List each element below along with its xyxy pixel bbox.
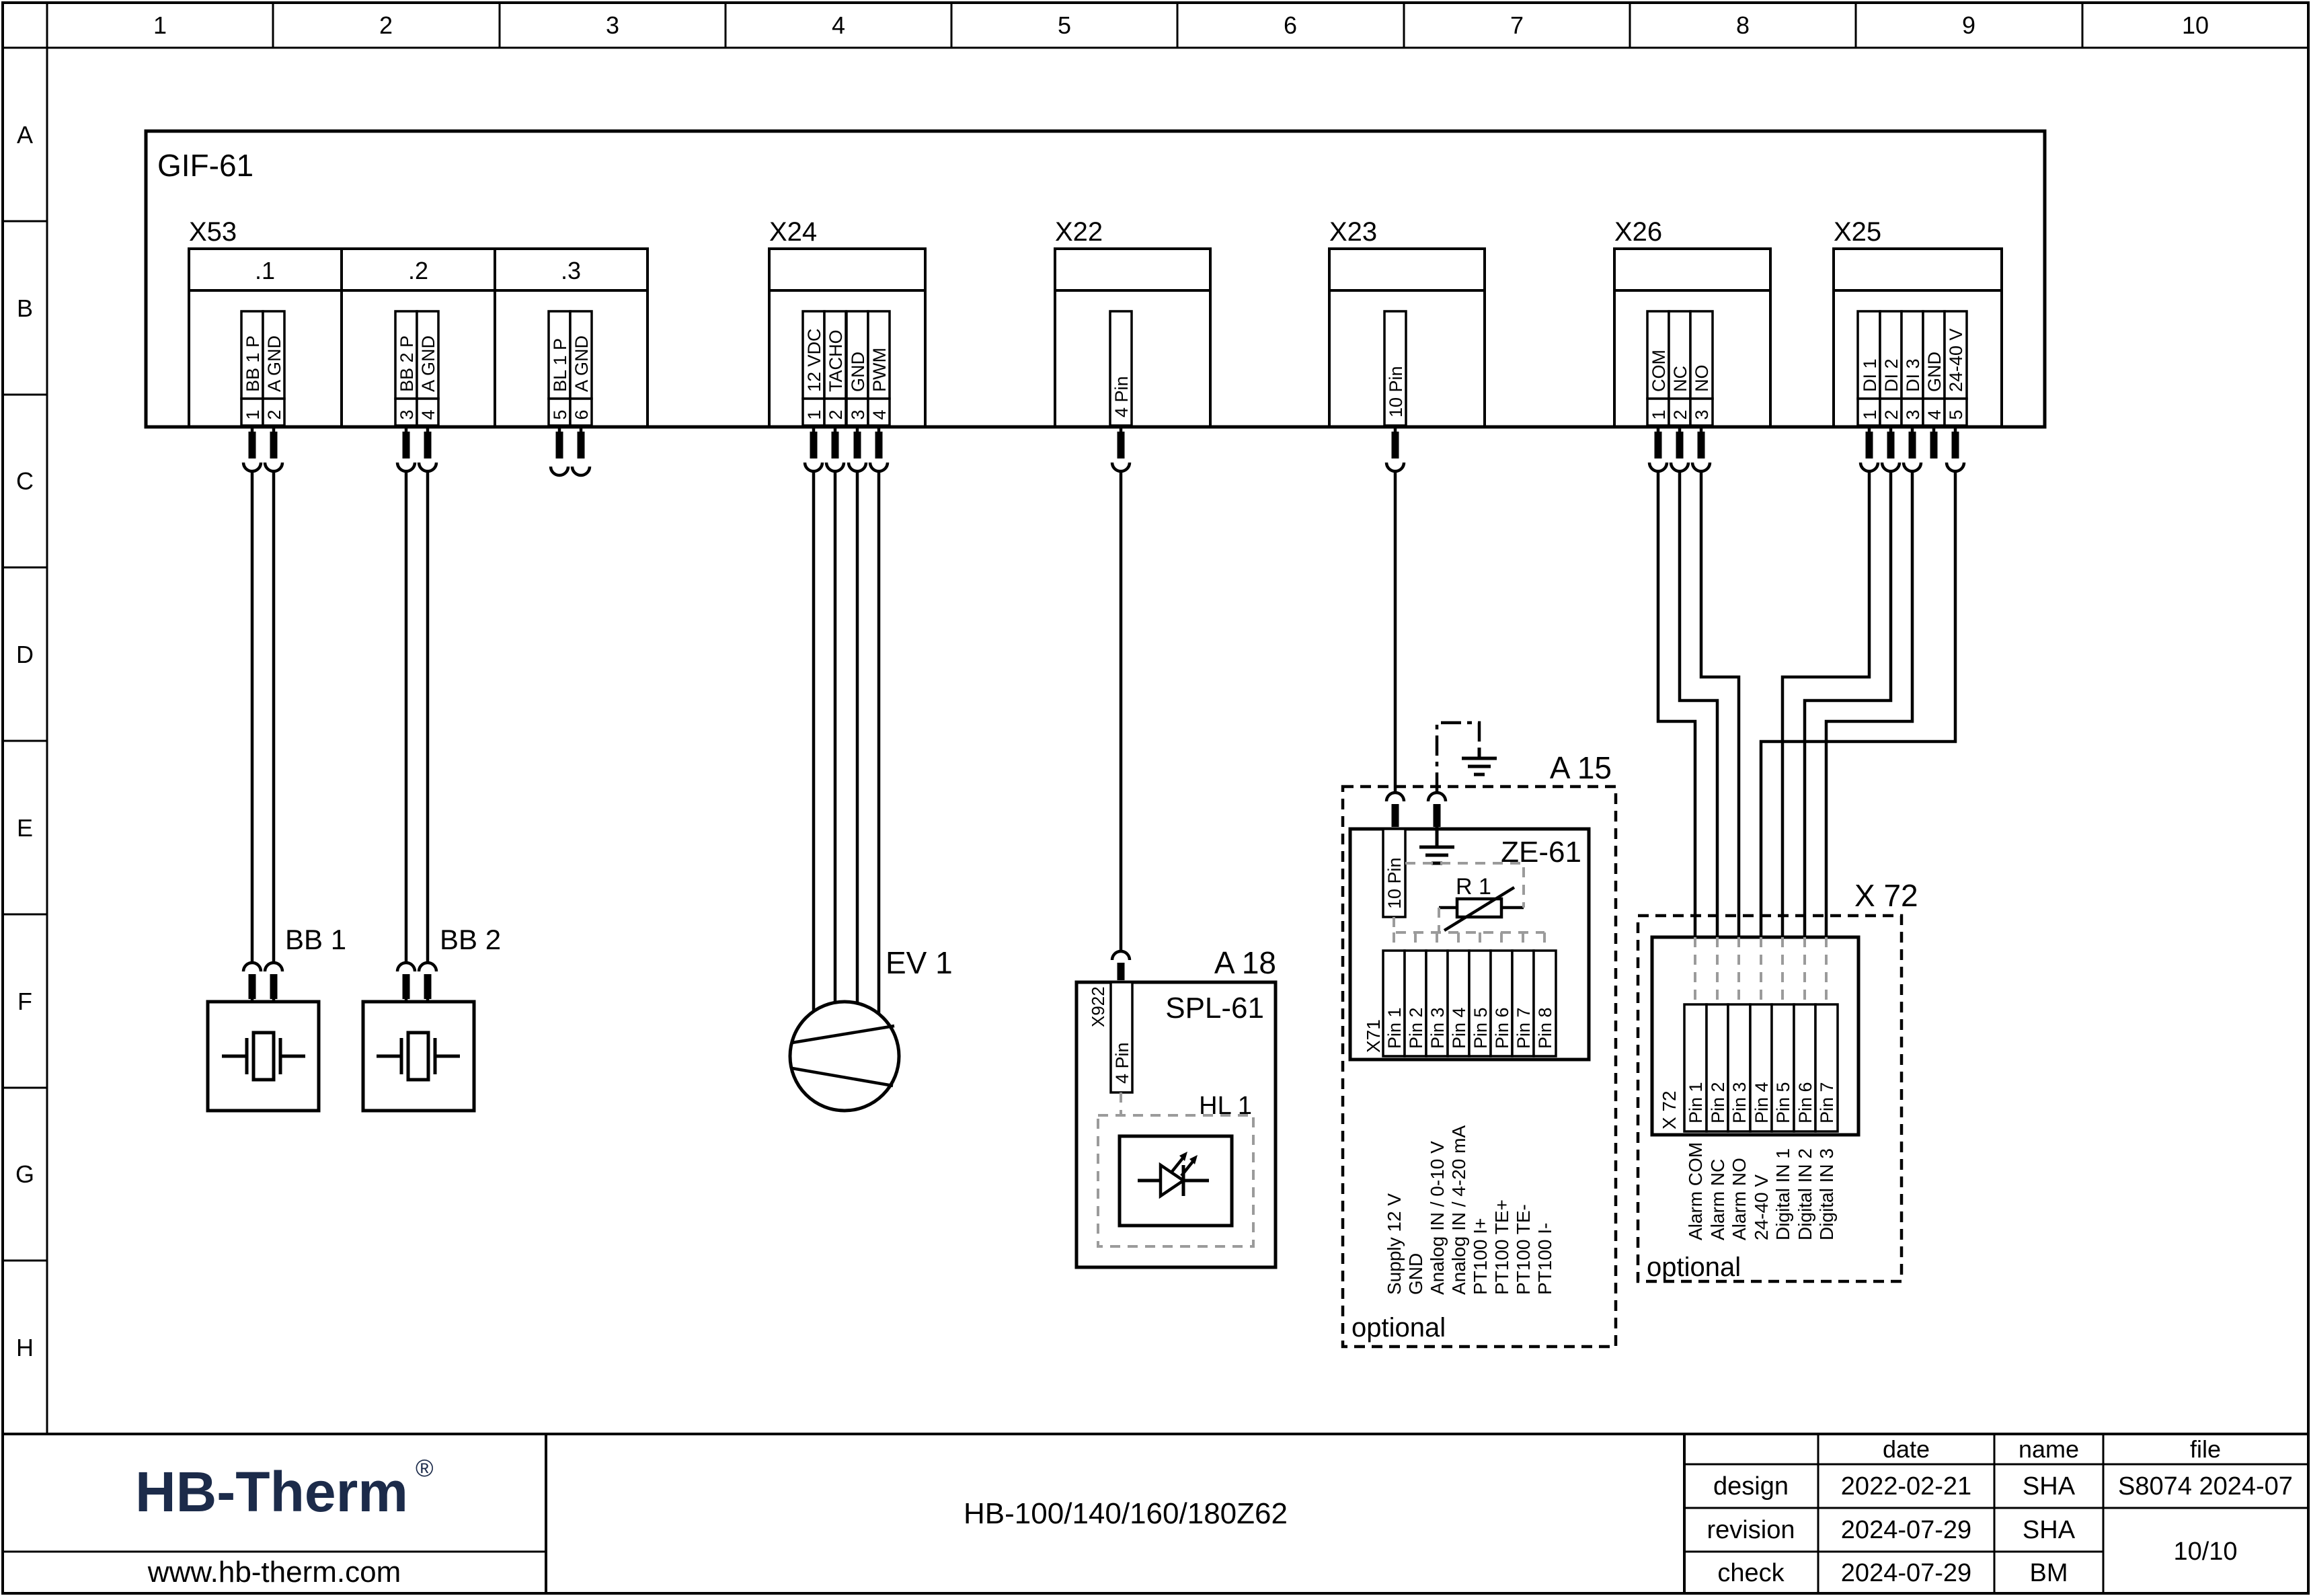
column-label: 4: [832, 11, 845, 39]
row-design-name: SHA: [2023, 1472, 2076, 1501]
pin-number: 3: [397, 409, 417, 420]
pin-name: COM: [1649, 350, 1669, 392]
row-label: H: [16, 1334, 34, 1361]
pin-name: 4 Pin: [1111, 376, 1132, 417]
pin-slot: A GND 6: [570, 311, 592, 426]
column-label: 8: [1736, 11, 1750, 39]
pin-slot: NO 3: [1690, 311, 1713, 426]
pin-name: Pin 6: [1795, 1082, 1815, 1123]
signal-label: Alarm NC: [1707, 1159, 1728, 1240]
pin-number: 3: [848, 409, 868, 420]
pin-number: 4: [1924, 409, 1945, 420]
row-revision-date: 2024-07-29: [1841, 1516, 1971, 1544]
website: www.hb-therm.com: [147, 1556, 401, 1589]
page-number: 10/10: [2173, 1538, 2237, 1566]
spl61-label: SPL-61: [1165, 992, 1264, 1025]
pin-name: Pin 1: [1686, 1082, 1706, 1123]
gif61-label: GIF-61: [157, 148, 253, 183]
pin-name: Pin 4: [1752, 1082, 1772, 1123]
ze61-10pin: 10 Pin: [1384, 857, 1405, 909]
x72-label: X 72: [1854, 878, 1918, 913]
pin-number: 2: [826, 409, 846, 420]
plug-connector-pin-only: [1930, 427, 1938, 458]
x26-label: X26: [1614, 217, 1662, 247]
pin-name: Pin 6: [1492, 1007, 1512, 1049]
pin-slot: NC 2: [1669, 311, 1690, 426]
pin-name: Pin 3: [1729, 1082, 1750, 1123]
pin-name: PWM: [869, 348, 890, 392]
signal-label: GND: [1405, 1253, 1426, 1295]
pin-name: DI 1: [1860, 358, 1880, 392]
column-label: 10: [2182, 11, 2209, 39]
x71-label: X71: [1363, 1019, 1384, 1053]
row-check-date: 2024-07-29: [1841, 1559, 1971, 1587]
x72-optional: optional: [1647, 1252, 1741, 1282]
pin-name: BB 2 P: [397, 335, 417, 392]
x72-connector-label: X 72: [1659, 1090, 1680, 1129]
pin-slot: 24-40 V 5: [1945, 311, 1967, 426]
row-label: F: [17, 988, 32, 1015]
signal-label: Analog IN / 4-20 mA: [1448, 1125, 1469, 1295]
pin-number: 3: [1692, 409, 1712, 420]
x25-label: X25: [1834, 217, 1881, 247]
pin-slot: A GND 4: [417, 311, 438, 426]
pin-slot: COM 1: [1647, 311, 1669, 426]
pin-name: Pin 5: [1471, 1007, 1491, 1049]
pin-slot: PWM 4: [868, 311, 890, 426]
x53-group-1: .1: [255, 257, 275, 284]
pin-name: NO: [1692, 365, 1712, 393]
r1-label: R 1: [1456, 874, 1491, 900]
x71-pins: Pin 1 Pin 2 Pin 3 Pin 4 Pin 5 Pin 6 Pin …: [1383, 951, 1556, 1056]
pin-number: 6: [572, 409, 592, 420]
pin-name: Pin 2: [1708, 1082, 1728, 1123]
row-design-label: design: [1713, 1472, 1789, 1501]
x22-label: X22: [1055, 217, 1103, 247]
column-label: 7: [1510, 11, 1524, 39]
x72-pins: Pin 1 Pin 2 Pin 3 Pin 4 Pin 5 Pin 6 Pin …: [1684, 1004, 1838, 1131]
pin-name: GND: [1924, 352, 1945, 392]
column-label: 9: [1962, 11, 1975, 39]
pin-name: DI 2: [1881, 358, 1902, 392]
pin-number: 5: [1946, 409, 1966, 420]
pin-number: 1: [1860, 409, 1880, 420]
pin-number: 3: [1903, 409, 1923, 420]
pin-name: Pin 1: [1384, 1007, 1405, 1049]
x922-label: X922: [1088, 986, 1108, 1027]
bb2-label: BB 2: [440, 924, 501, 955]
pin-number: 2: [1881, 409, 1902, 420]
pin-name: Pin 7: [1514, 1007, 1534, 1049]
row-label: B: [17, 294, 33, 322]
row-label: D: [16, 641, 34, 668]
signal-label: PT100 TE-: [1513, 1204, 1534, 1295]
pin-name: Pin 2: [1406, 1007, 1426, 1049]
pin-name: NC: [1670, 366, 1690, 392]
pin-number: 5: [550, 409, 570, 420]
logo-registered-mark: ®: [416, 1454, 434, 1482]
pin-name: 10 Pin: [1386, 366, 1406, 417]
row-check-label: check: [1717, 1559, 1785, 1587]
pin-name: DI 3: [1903, 358, 1923, 392]
column-label: 6: [1284, 11, 1297, 39]
x53-group-3: .3: [561, 257, 581, 284]
signal-label: Digital IN 2: [1795, 1148, 1815, 1240]
table-header-date: date: [1883, 1435, 1930, 1463]
x24-label: X24: [769, 217, 817, 247]
signal-label: PT100 TE+: [1491, 1199, 1512, 1295]
x53-label: X53: [189, 217, 237, 247]
schematic-sheet: 1 2 3 4 5 6 7 8 9 10 A B C D E F G H GIF…: [0, 0, 2311, 1596]
pin-slot: BB 1 P 1: [241, 311, 263, 426]
a18-label: A 18: [1214, 945, 1276, 980]
signal-label: Analog IN / 0-10 V: [1427, 1141, 1448, 1295]
column-label: 1: [153, 11, 167, 39]
pin-name: TACHO: [826, 330, 846, 393]
ev1-label: EV 1: [886, 945, 953, 980]
pin-name: GND: [848, 352, 868, 392]
pin-name: Pin 3: [1427, 1007, 1448, 1049]
column-label: 2: [379, 11, 393, 39]
pin-slot: 12 VDC 1: [803, 311, 824, 426]
column-label: 3: [606, 11, 619, 39]
bb1-label: BB 1: [285, 924, 346, 955]
pin-number: 2: [264, 409, 284, 420]
column-label: 5: [1058, 11, 1071, 39]
pin-name: 24-40 V: [1946, 328, 1966, 392]
pin-slot: DI 3 3: [1902, 311, 1923, 426]
file-value: S8074 2024-07: [2118, 1472, 2293, 1501]
row-label: E: [17, 814, 33, 842]
table-header-file: file: [2190, 1435, 2221, 1463]
pin-number: 1: [1649, 409, 1669, 420]
pin-slot: GND 3: [847, 311, 868, 426]
pin-slot: DI 2 2: [1880, 311, 1902, 426]
x922-pin: 4 Pin: [1112, 1042, 1132, 1084]
pin-name: Pin 7: [1817, 1082, 1837, 1123]
a15-label: A 15: [1550, 750, 1612, 785]
row-design-date: 2022-02-21: [1841, 1472, 1971, 1501]
pin-name: 12 VDC: [804, 328, 824, 392]
connector-x53: X53 .1 .2 .3 BB 1 P 1 A GND 2 BB 2 P 3 A…: [189, 217, 648, 427]
row-label: A: [17, 121, 33, 149]
pin-name: Pin 5: [1773, 1082, 1793, 1123]
pin-number: 1: [804, 409, 824, 420]
pin-name: Pin 4: [1449, 1007, 1469, 1049]
row-revision-label: revision: [1707, 1516, 1795, 1544]
pin-slot: A GND 2: [263, 311, 284, 426]
x23-label: X23: [1329, 217, 1377, 247]
pin-number: 4: [418, 409, 438, 420]
pin-name: Pin 8: [1535, 1007, 1555, 1049]
signal-label: Digital IN 1: [1772, 1148, 1793, 1240]
pin-slot: BL 1 P 5: [549, 311, 570, 426]
row-check-name: BM: [2030, 1559, 2068, 1587]
signal-label: Alarm NO: [1729, 1158, 1750, 1240]
pin-slot: BB 2 P 3: [395, 311, 417, 426]
drawing-title: HB-100/140/160/180Z62: [964, 1497, 1288, 1530]
a15-optional: optional: [1352, 1313, 1446, 1343]
signal-label: 24-40 V: [1751, 1174, 1772, 1240]
pin-name: A GND: [418, 335, 438, 392]
x53-group-2: .2: [408, 257, 428, 284]
pin-name: A GND: [572, 335, 592, 392]
pin-number: 4: [869, 409, 890, 420]
pin-number: 1: [243, 409, 263, 420]
pin-slot: DI 1 1: [1858, 311, 1880, 426]
table-header-name: name: [2019, 1435, 2079, 1463]
pin-name: BB 1 P: [243, 335, 263, 392]
signal-label: Alarm COM: [1685, 1142, 1706, 1240]
row-label: G: [15, 1160, 34, 1188]
signal-label: Supply 12 V: [1384, 1193, 1405, 1295]
pin-slot: GND 4: [1923, 311, 1945, 426]
drawing-frame: 1 2 3 4 5 6 7 8 9 10 A B C D E F G H: [3, 3, 2308, 1593]
pin-name: A GND: [264, 335, 284, 392]
signal-label: PT100 I-: [1534, 1223, 1555, 1295]
signal-label: PT100 I+: [1470, 1218, 1491, 1295]
row-label: C: [16, 467, 34, 495]
logo-text: HB-Therm: [135, 1460, 408, 1523]
pin-number: 2: [1670, 409, 1690, 420]
row-revision-name: SHA: [2023, 1516, 2076, 1544]
company-logo: HB-Therm ®: [135, 1454, 434, 1523]
pin-name: BL 1 P: [550, 338, 570, 392]
pin-slot: TACHO 2: [824, 311, 846, 426]
signal-label: Digital IN 3: [1816, 1148, 1837, 1240]
